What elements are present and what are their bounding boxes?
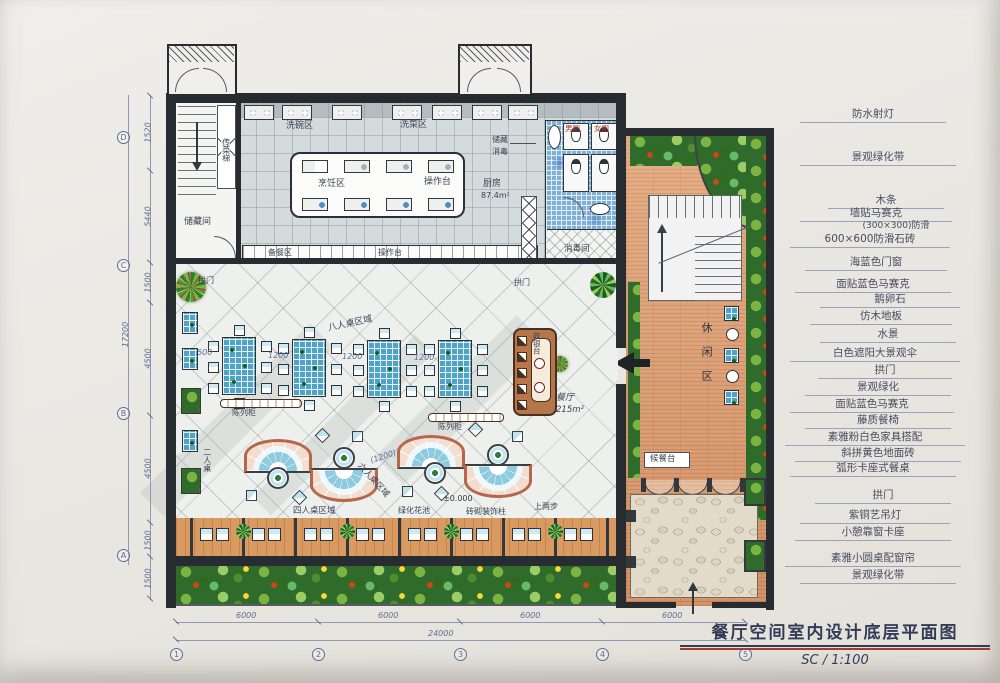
window-table-pair [200,528,230,542]
cook-station [386,160,412,173]
stool [402,486,413,497]
washbasin [548,125,561,149]
window-table-pair [408,528,438,542]
chair [406,365,417,376]
dining-area-label: 215m² [556,406,584,415]
grid-bubble-1: 1 [170,648,183,661]
left-dim: 4500 [144,458,153,478]
table-dim: 1200 [342,352,362,361]
annotation: 拱门 [815,487,951,504]
annotation: 白色遮阳大景观伞 [790,345,960,362]
booth-round-table [487,444,509,466]
chair [379,401,390,412]
chair [580,528,593,541]
wall-stub-right [616,566,626,608]
annotation: 海蓝色门窗 [805,254,947,271]
display-cabinet [428,413,504,422]
garden-right-planting [746,136,766,520]
chair [512,528,525,541]
annotation: 紫铜艺吊灯 [800,507,950,524]
chair [460,528,473,541]
stair-down-arrow-line [196,122,198,164]
wall-left [166,93,176,566]
dishwash-label: 洗碗区 [286,122,313,132]
stair-treads-top [649,196,743,218]
total-dim: 24000 [428,629,453,638]
tablecloth [438,340,472,398]
chair [320,528,333,541]
window-post [398,518,401,558]
tablecloth [292,339,326,397]
male-wc-label: 男厕 [565,125,580,133]
cashier-stool [534,382,545,393]
annotation: 小憩靠窗卡座 [795,524,951,541]
chair [331,385,342,396]
counter-shelf [517,400,527,410]
chair [331,364,342,375]
entry-door-leaf [497,68,521,92]
chair [379,328,390,339]
dining-name-label: 餐厅 [556,394,574,404]
chair [268,528,281,541]
entry-door-leaf [203,68,227,92]
wc-stall [591,154,617,192]
side-planter [181,468,201,494]
left-total-dim: 17200 [121,322,130,347]
wall-stub-left [166,566,176,608]
waiting-counter-label: 候餐台 [650,455,676,464]
garden-round-table [726,328,739,341]
kitchen-area-label: 87.4m² [481,192,510,201]
sheet-title: 餐厅空间室内设计底层平面图 [680,618,990,643]
left-dim: 5440 [144,206,153,226]
wall-right [616,93,626,348]
annotation: 鹅卵石 [820,291,960,308]
cook-station [386,198,412,211]
window-post [190,518,193,558]
window-post [294,518,297,558]
window-palm [236,524,251,539]
entry-vestibule-left [167,44,237,96]
kitchen-label: 厨房 [483,180,501,190]
annotation: 素雅小圆桌配窗帘 [785,550,961,567]
wall-storage-divider [236,103,241,258]
stair-arrow-head [657,224,667,233]
wall-garden-bottom [712,602,774,608]
stair-treads [695,230,742,301]
stair-down-arrow-head [192,162,202,171]
annotation: 面贴蓝色马赛克 [790,396,954,413]
toilet [599,159,609,174]
sheet-scale: SC / 1:100 [680,653,990,668]
female-wc-label: 女厕 [594,125,609,133]
wall-garden-bottom [626,602,676,608]
chair [304,327,315,338]
side-table [182,430,198,452]
chair [408,528,421,541]
title-underline-red [680,648,990,650]
grid-bubble-2: 2 [312,648,325,661]
bay-dim: 6000 [520,611,540,620]
bay-dim: 6000 [378,611,398,620]
window-post [606,518,609,558]
left-dim: 1500 [144,530,153,550]
prep-label: 备餐区 [268,249,292,258]
garden-left-planting [628,282,640,478]
zone2-label: 二人桌 [202,448,211,472]
annotation: 景观绿化带 [800,567,956,584]
garden-round-table [726,370,739,383]
chair [528,528,541,541]
chair [278,385,289,396]
booth-round-table [267,467,289,489]
garden-entry-arrow-head [688,582,698,591]
chair [331,343,342,354]
chair [450,328,461,339]
wc-stall [563,154,589,192]
annotation: 防水射灯 [800,106,946,123]
grid-bubble-C: C [117,259,130,272]
annotation: 藤质餐椅 [805,412,951,429]
storage-room-label: 储藏间 [184,218,211,228]
table-8p [353,328,417,412]
chair [356,528,369,541]
worktop-label: 操作台 [424,178,451,188]
cook-station [428,160,454,173]
equipment-unit [432,105,462,120]
planting-edge [176,604,618,606]
chair [353,386,364,397]
entry-vestibule-right [458,44,532,96]
stool [246,490,257,501]
toilet [571,159,581,174]
chair [278,364,289,375]
level-mark: ±0.000 [443,494,473,503]
chair [477,344,488,355]
counter-shelf [517,336,527,346]
chair [477,386,488,397]
planter-label: 绿化花池 [398,507,430,516]
cooking-label: 烹饪区 [318,180,345,190]
window-table-pair [512,528,542,542]
chair [353,365,364,376]
swag-post [641,478,646,492]
counter-shelf [517,384,527,394]
side-table [182,312,198,334]
annotation: 素雅粉白色家具搭配 [785,429,965,446]
chair [477,365,488,376]
side-table [182,348,198,370]
garden-entry-arrow-line [692,590,694,614]
window-palm [444,524,459,539]
side-planter [181,388,201,414]
cook-station [344,198,370,211]
wall-garden-top [626,128,774,136]
window-table-pair [252,528,282,542]
vegwash-label: 洗菜区 [400,121,427,131]
pebble-side-planter [744,540,766,572]
disinfect-room-label: 消毒间 [564,245,590,254]
window-table-pair [304,528,334,542]
garden-table [724,390,739,405]
grid-bubble-4: 4 [596,648,609,661]
cashier-label: 收银台 [532,332,540,355]
stool [512,431,523,442]
counter-shelf [517,368,527,378]
bay-dim: 6000 [236,611,256,620]
table-dim: 1200 [268,351,288,360]
chair [208,383,219,394]
chair [372,528,385,541]
chair [234,325,245,336]
wall-kitchen-divider [176,258,616,264]
left-dim: 1520 [144,122,153,142]
title-block: 餐厅空间室内设计底层平面图 SC / 1:100 [680,618,990,668]
steps-label: 上两步 [534,503,558,512]
pebble-side-planter [744,478,766,506]
annotation: (300×300)防滑 [832,218,960,232]
kitchen-shelf-column [521,196,537,260]
booth-arc-flipped [464,464,532,498]
tablecloth [367,340,401,398]
arch-label: 拱门 [198,277,214,286]
cook-station [428,198,454,211]
dumbwaiter-label: 传菜梯 [221,138,230,162]
cashier-stool [534,358,545,369]
entry-door-leaf [175,68,199,92]
worktop2-label: 操作台 [378,249,402,258]
leisure-zone-label: 休闲区 [700,322,712,394]
dining-entry-arrow-tail [634,359,650,367]
equipment-unit [392,105,422,120]
chair [424,528,437,541]
window-palm [340,524,355,539]
chair [406,386,417,397]
window-table-pair [356,528,386,542]
display-cabinet-label: 陈列柜 [232,409,256,418]
window-table-pair [460,528,490,542]
table-8p [424,328,488,412]
annotation: 600×600防滑石砖 [790,231,950,248]
washbasin-oval [590,203,610,215]
chair [261,383,272,394]
chair [208,362,219,373]
annotation: 弧形卡座式餐桌 [790,460,956,477]
window-post [502,518,505,558]
tablecloth [222,337,256,395]
wall-right [616,384,626,566]
entry-door-leaf [467,68,491,92]
chair [304,400,315,411]
swag-post [707,478,712,492]
pebble-post [626,510,636,522]
annotation: 景观绿化 [805,379,951,396]
cook-station [302,160,328,173]
restroom-block [545,120,618,262]
chair [424,386,435,397]
left-dim: 1500 [144,272,153,292]
vestibule-hatch [169,46,234,62]
display-cabinet-label: 陈列柜 [438,423,462,432]
chair [450,401,461,412]
left-dim: 4500 [144,348,153,368]
zone4-label: 四人桌区域 [293,507,336,516]
grid-bubble-D: D [117,131,130,144]
scanned-floor-plan-sheet: 休闲区 候餐台 传菜梯 储藏间 [0,0,1000,683]
kitchen-equipment-row [240,105,540,123]
window-table-pair [564,528,594,542]
chair [424,365,435,376]
chair [304,528,317,541]
grid-bubble-B: B [117,407,130,420]
disinfect-label: 消毒 [492,148,508,157]
chair [252,528,265,541]
label-leader [510,143,536,144]
restroom-door [564,197,584,217]
chair [476,528,489,541]
south-planting-strip [176,564,618,606]
chair [200,528,213,541]
column-label: 砖砌装饰柱 [466,508,506,517]
grid-bubble-A: A [117,549,130,562]
vestibule-hatch [460,46,529,62]
grid-bubble-3: 3 [454,648,467,661]
dim-line-total [176,640,745,641]
palm-plant [590,272,616,298]
counter-shelf [517,352,527,362]
chair [261,362,272,373]
title-underline-dark [680,645,990,647]
swag-post [674,478,679,492]
booth-round-table [424,462,446,484]
equipment-unit [244,105,274,120]
table-8p [208,325,272,409]
equipment-unit [282,105,312,120]
annotation: 仿木地板 [810,308,952,325]
booth-round-table [333,447,355,469]
store-label: 储藏 [492,136,508,145]
left-dim: 1500 [144,568,153,588]
annotation: 拱门 [818,362,952,379]
arch-label: 拱门 [514,279,530,288]
cook-station [344,160,370,173]
wall-bottom [166,556,626,566]
chair [216,528,229,541]
cook-station [302,198,328,211]
pebble-post [626,556,636,568]
annotation: 水景 [820,326,956,343]
wall-garden-right [766,128,774,610]
equipment-unit [508,105,538,120]
garden-staircase [648,195,742,301]
annotation: 景观绿化带 [800,149,956,166]
window-palm [548,524,563,539]
chair [564,528,577,541]
table-dim: 1200 [414,353,434,362]
garden-table [724,306,739,321]
stool [352,431,363,442]
equipment-unit [472,105,502,120]
display-cabinet [220,399,302,408]
garden-table [724,348,739,363]
equipment-unit [332,105,362,120]
